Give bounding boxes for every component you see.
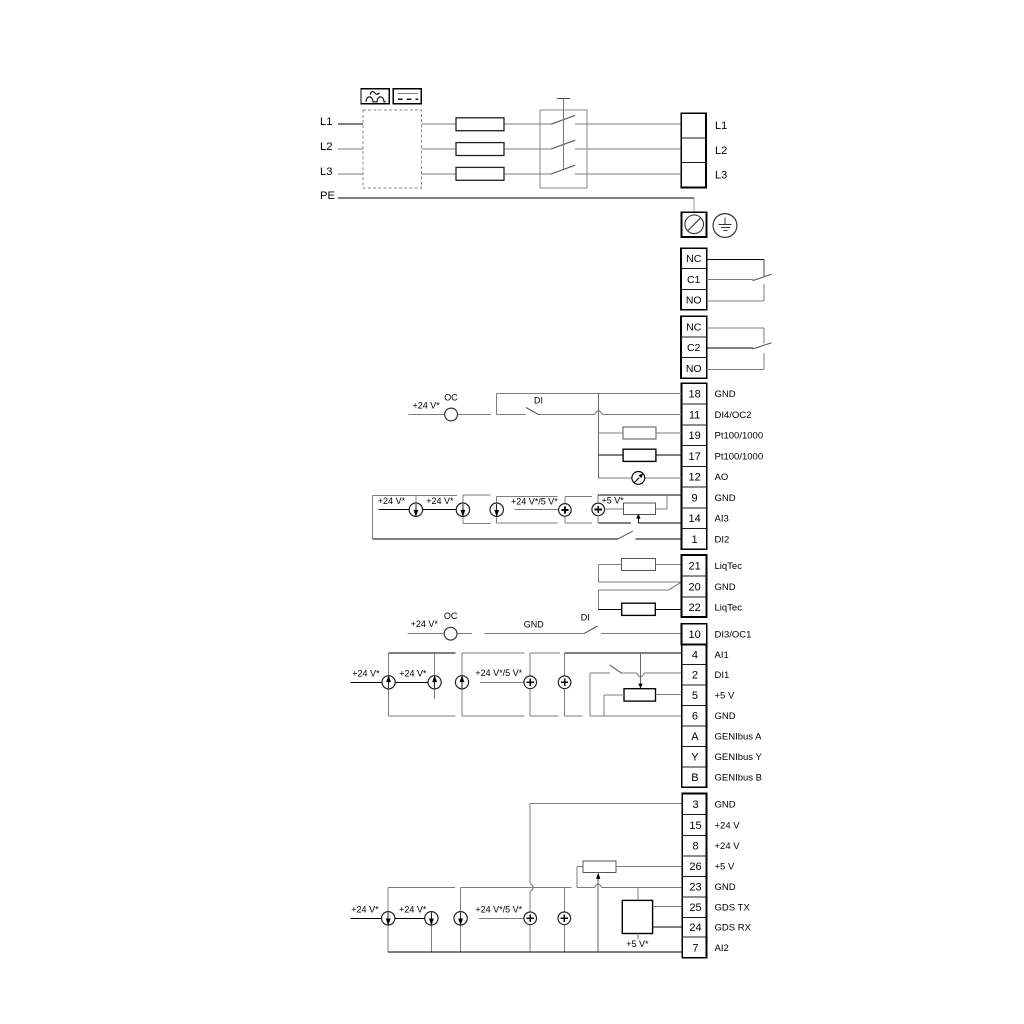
- svg-text:DI1: DI1: [715, 670, 730, 681]
- svg-text:AI3: AI3: [715, 514, 729, 525]
- svg-text:DI4/OC2: DI4/OC2: [715, 410, 752, 421]
- svg-text:+24 V*: +24 V*: [411, 619, 439, 629]
- svg-text:25: 25: [689, 902, 701, 914]
- svg-text:DI2: DI2: [715, 534, 730, 545]
- svg-text:+24 V*: +24 V*: [351, 904, 379, 914]
- svg-text:Y: Y: [691, 752, 699, 764]
- svg-text:12: 12: [688, 472, 700, 484]
- svg-text:LiqTec: LiqTec: [715, 561, 743, 572]
- svg-text:9: 9: [692, 492, 698, 504]
- svg-text:+5 V*: +5 V*: [626, 939, 649, 949]
- svg-text:24: 24: [689, 922, 701, 934]
- svg-text:+5 V: +5 V: [715, 691, 735, 702]
- svg-text:+24 V*: +24 V*: [378, 496, 406, 506]
- svg-text:OC: OC: [444, 611, 458, 621]
- svg-text:L1: L1: [715, 120, 727, 132]
- svg-text:DI: DI: [534, 395, 543, 405]
- svg-text:GENIbus A: GENIbus A: [715, 732, 763, 743]
- svg-text:L3: L3: [715, 170, 727, 182]
- svg-text:DI3/OC1: DI3/OC1: [715, 630, 752, 641]
- svg-text:+24 V: +24 V: [715, 820, 741, 831]
- svg-text:C1: C1: [687, 274, 701, 286]
- svg-text:26: 26: [689, 861, 701, 873]
- svg-text:GDS TX: GDS TX: [715, 903, 751, 914]
- svg-text:L2: L2: [320, 141, 332, 153]
- svg-text:B: B: [691, 772, 698, 784]
- svg-text:OC: OC: [444, 393, 458, 403]
- svg-text:NO: NO: [686, 363, 702, 375]
- svg-text:+24 V*: +24 V*: [399, 904, 427, 914]
- svg-text:+24 V*/5 V*: +24 V*/5 V*: [511, 496, 558, 506]
- svg-text:NC: NC: [686, 322, 702, 334]
- svg-text:21: 21: [688, 560, 700, 572]
- svg-text:2: 2: [692, 670, 698, 682]
- svg-text:20: 20: [688, 581, 700, 593]
- svg-text:+5 V: +5 V: [715, 862, 735, 873]
- svg-text:NO: NO: [686, 295, 702, 307]
- svg-text:17: 17: [688, 451, 700, 463]
- svg-text:+5 V*: +5 V*: [602, 496, 625, 506]
- svg-text:4: 4: [692, 649, 698, 661]
- svg-text:GND: GND: [715, 711, 736, 722]
- svg-text:11: 11: [689, 409, 700, 421]
- svg-text:GDS RX: GDS RX: [715, 923, 752, 934]
- svg-text:AI2: AI2: [715, 943, 729, 954]
- svg-text:GND: GND: [715, 582, 736, 593]
- svg-text:LiqTec: LiqTec: [715, 602, 743, 613]
- svg-text:GND: GND: [715, 799, 736, 810]
- svg-text:L2: L2: [715, 145, 727, 157]
- svg-text:C2: C2: [687, 342, 701, 354]
- svg-text:22: 22: [688, 602, 700, 614]
- svg-text:15: 15: [689, 820, 701, 832]
- svg-text:PE: PE: [320, 190, 335, 202]
- svg-text:7: 7: [692, 942, 698, 954]
- svg-text:10: 10: [688, 629, 700, 641]
- svg-text:GND: GND: [715, 493, 736, 504]
- svg-text:GND: GND: [524, 619, 545, 629]
- svg-text:19: 19: [688, 430, 700, 442]
- svg-text:Pt100/1000: Pt100/1000: [715, 451, 764, 462]
- svg-text:1: 1: [692, 534, 698, 546]
- svg-text:5: 5: [692, 690, 698, 702]
- svg-text:AO: AO: [715, 472, 729, 483]
- svg-text:AI1: AI1: [715, 650, 729, 661]
- svg-text:3: 3: [692, 799, 698, 811]
- svg-text:NC: NC: [686, 253, 702, 265]
- svg-text:+24 V*: +24 V*: [399, 668, 427, 678]
- svg-text:14: 14: [688, 513, 700, 525]
- svg-text:DI: DI: [581, 612, 590, 622]
- svg-text:GND: GND: [715, 882, 736, 893]
- svg-text:+24 V*: +24 V*: [426, 496, 454, 506]
- svg-text:Pt100/1000: Pt100/1000: [715, 431, 764, 442]
- svg-text:GENIbus B: GENIbus B: [715, 772, 763, 783]
- svg-text:+24 V*: +24 V*: [413, 400, 441, 410]
- svg-text:23: 23: [689, 882, 701, 894]
- svg-text:A: A: [691, 731, 699, 743]
- svg-text:GND: GND: [715, 389, 736, 400]
- svg-text:L1: L1: [320, 116, 332, 128]
- svg-text:+24 V*/5 V*: +24 V*/5 V*: [475, 668, 522, 678]
- svg-text:GENIbus Y: GENIbus Y: [715, 752, 763, 763]
- svg-text:L3: L3: [320, 166, 332, 178]
- svg-text:+24 V*/5 V*: +24 V*/5 V*: [475, 904, 522, 914]
- svg-text:+24 V*: +24 V*: [352, 668, 380, 678]
- svg-text:6: 6: [692, 711, 698, 723]
- svg-text:8: 8: [692, 841, 698, 853]
- svg-text:18: 18: [688, 389, 700, 401]
- svg-text:+24 V: +24 V: [715, 841, 741, 852]
